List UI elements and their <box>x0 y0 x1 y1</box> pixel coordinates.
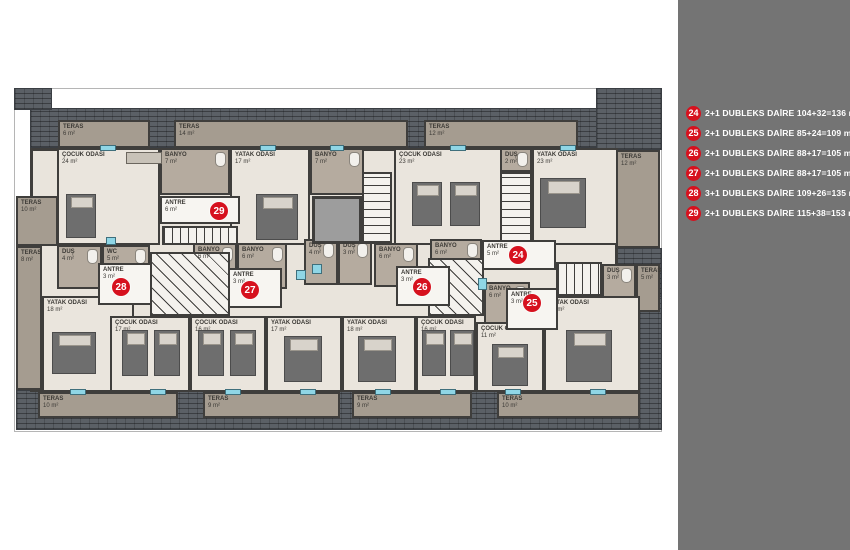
window <box>375 389 391 395</box>
room-area: 24 m² <box>62 159 105 166</box>
room-label: YATAK ODASI23 m² <box>537 152 577 166</box>
bed-pillow <box>454 333 471 345</box>
room-banyo: BANYO7 m² <box>310 148 364 195</box>
room-antre: ANTRE6 m² <box>160 196 240 224</box>
room-name: ANTRE <box>165 200 186 206</box>
room-name: ÇOCUK ODASI <box>115 320 158 326</box>
room-area: 23 m² <box>537 159 577 166</box>
room-area: 6 m² <box>435 250 457 257</box>
room--ocuk-odasi: ÇOCUK ODASI23 m² <box>394 148 502 245</box>
room-label: ÇOCUK ODASI24 m² <box>62 152 105 166</box>
legend-unit-text: 3+1 DUBLEKS DAİRE 109+26=135 m² <box>705 188 850 198</box>
roof-hatch <box>596 88 662 150</box>
bed-pillow <box>290 339 317 351</box>
room-name: YATAK ODASI <box>537 152 577 158</box>
room-teras: TERAS10 m² <box>497 392 640 418</box>
legend-item: 283+1 DUBLEKS DAİRE 109+26=135 m² <box>686 185 850 201</box>
legend-item: 242+1 DUBLEKS DAİRE 104+32=136 m² <box>686 105 850 121</box>
room-label: DUŞ3 m² <box>607 268 620 282</box>
window <box>450 145 466 151</box>
room-name: BANYO <box>315 152 337 158</box>
room-name: YATAK ODASI <box>347 320 387 326</box>
room-name: TERAS <box>63 124 83 130</box>
legend-unit-text: 2+1 DUBLEKS DAİRE 85+24=109 m² <box>705 128 850 138</box>
room-teras: TERAS10 m² <box>16 196 58 246</box>
room-name: DUŞ <box>607 268 620 274</box>
room-area: 23 m² <box>399 159 442 166</box>
legend-item: 262+1 DUBLEKS DAİRE 88+17=105 m² <box>686 145 850 161</box>
room-label: YATAK ODASI17 m² <box>235 152 275 166</box>
room-name: TERAS <box>179 124 199 130</box>
room-area: 4 m² <box>62 256 75 263</box>
window <box>478 278 487 290</box>
room-name: DUŞ <box>505 152 518 158</box>
room-label: ANTRE5 m² <box>487 244 508 258</box>
window <box>100 145 116 151</box>
staircase <box>362 172 392 244</box>
window <box>330 145 344 151</box>
room-label: BANYO6 m² <box>379 247 401 261</box>
room-area: 14 m² <box>179 131 199 138</box>
legend-unit-badge: 24 <box>686 106 701 121</box>
room-name: WC <box>107 249 117 255</box>
bed-pillow <box>574 333 607 346</box>
room-teras: TERAS12 m² <box>424 120 578 148</box>
room-name: ÇOCUK ODASI <box>421 320 464 326</box>
room-label: WC5 m² <box>107 249 119 263</box>
room-area: 7 m² <box>315 159 337 166</box>
legend-unit-badge: 29 <box>686 206 701 221</box>
bed <box>492 344 528 386</box>
room-label: BANYO6 m² <box>242 247 264 261</box>
legend-unit-badge: 26 <box>686 146 701 161</box>
staircase <box>556 262 602 296</box>
room-name: TERAS <box>208 396 228 402</box>
bed <box>122 330 148 376</box>
elevator-shaft <box>312 196 362 244</box>
room-du-: DUŞ4 m² <box>304 239 338 285</box>
room-label: TERAS5 m² <box>641 268 661 282</box>
room-du-: DUŞ3 m² <box>338 239 372 285</box>
room-name: TERAS <box>502 396 522 402</box>
room-du-: DUŞ4 m² <box>57 245 102 289</box>
room-name: ANTRE <box>233 272 254 278</box>
room-label: BANYO6 m² <box>435 243 457 257</box>
room-name: ANTRE <box>487 244 508 250</box>
room-label: DUŞ4 m² <box>62 249 75 263</box>
bed-pillow <box>127 333 146 345</box>
room-banyo: BANYO7 m² <box>160 148 230 195</box>
room-label: YATAK ODASI17 m² <box>271 320 311 334</box>
room-name: ANTRE <box>401 270 422 276</box>
bed-pillow <box>235 333 254 345</box>
roof-hatch <box>14 88 52 110</box>
room-label: TERAS12 m² <box>429 124 449 138</box>
legend-panel: 242+1 DUBLEKS DAİRE 104+32=136 m²252+1 D… <box>678 0 850 550</box>
room-label: TERAS10 m² <box>502 396 522 410</box>
unit-badge: 25 <box>523 294 541 312</box>
floor-plan: TERAS6 m²TERAS14 m²TERAS12 m²TERAS12 m²T… <box>0 0 678 550</box>
room-area: 12 m² <box>429 131 449 138</box>
room-name: TERAS <box>641 268 661 274</box>
wardrobe <box>126 152 162 164</box>
bed-pillow <box>59 335 90 346</box>
window <box>106 237 116 245</box>
room-teras: TERAS9 m² <box>203 392 340 418</box>
room-label: TERAS9 m² <box>357 396 377 410</box>
room-name: BANYO <box>242 247 264 253</box>
room-name: ANTRE <box>103 267 124 273</box>
floor-plan-page: TERAS6 m²TERAS14 m²TERAS12 m²TERAS12 m²T… <box>0 0 850 550</box>
room-name: TERAS <box>621 154 641 160</box>
window <box>225 389 241 395</box>
room-area: 10 m² <box>21 207 41 214</box>
unit-badge: 28 <box>112 278 130 296</box>
bed <box>198 330 224 376</box>
window <box>560 145 576 151</box>
room-area: 6 m² <box>63 131 83 138</box>
unit-badge: 29 <box>210 202 228 220</box>
room-name: YATAK ODASI <box>235 152 275 158</box>
window <box>300 389 316 395</box>
room-name: TERAS <box>357 396 377 402</box>
room-label: TERAS12 m² <box>621 154 641 168</box>
legend-unit-text: 2+1 DUBLEKS DAİRE 104+32=136 m² <box>705 108 850 118</box>
room-teras: TERAS6 m² <box>58 120 150 148</box>
room-du-: DUŞ3 m² <box>602 264 636 298</box>
bed-pillow <box>417 185 439 196</box>
room-label: DUŞ2 m² <box>505 152 518 166</box>
room-area: 7 m² <box>165 159 187 166</box>
room-teras: TERAS9 m² <box>352 392 472 418</box>
room-area: 9 m² <box>357 403 377 410</box>
bed-pillow <box>263 197 293 209</box>
room-label: BANYO7 m² <box>165 152 187 166</box>
room-area: 4 m² <box>309 250 322 257</box>
room-area: 3 m² <box>343 250 356 257</box>
bed <box>412 182 442 226</box>
legend-item: 272+1 DUBLEKS DAİRE 88+17=105 m² <box>686 165 850 181</box>
room-area: 12 m² <box>621 161 641 168</box>
room-teras: TERAS14 m² <box>174 120 408 148</box>
legend-unit-text: 2+1 DUBLEKS DAİRE 115+38=153 m² <box>705 208 850 218</box>
room-name: BANYO <box>435 243 457 249</box>
bed-pillow <box>364 339 391 351</box>
window <box>70 389 86 395</box>
room-area: 5 m² <box>487 251 508 258</box>
room-label: TERAS10 m² <box>21 200 41 214</box>
room-name: DUŞ <box>62 249 75 255</box>
legend-item: 252+1 DUBLEKS DAİRE 85+24=109 m² <box>686 125 850 141</box>
room-area: 11 m² <box>481 333 524 340</box>
room-area: 2 m² <box>505 159 518 166</box>
room-area: 18 m² <box>47 307 87 314</box>
room-label: TERAS14 m² <box>179 124 199 138</box>
room-name: TERAS <box>429 124 449 130</box>
unit-badge: 27 <box>241 281 259 299</box>
bed <box>256 194 298 240</box>
bed <box>52 332 96 374</box>
room-label: DUŞ4 m² <box>309 243 322 257</box>
bed <box>450 330 474 376</box>
window <box>150 389 166 395</box>
bed <box>230 330 256 376</box>
room-area: 18 m² <box>347 327 387 334</box>
room-area: 6 m² <box>379 254 401 261</box>
room-du-: DUŞ2 m² <box>500 148 532 172</box>
legend-unit-badge: 25 <box>686 126 701 141</box>
room-name: TERAS <box>21 200 41 206</box>
room-name: TERAS <box>43 396 63 402</box>
room-name: TERAS <box>21 250 41 256</box>
room-area: 10 m² <box>502 403 522 410</box>
bed <box>566 330 612 382</box>
bed-pillow <box>548 181 581 194</box>
bed <box>66 194 96 238</box>
bed-pillow <box>498 347 524 358</box>
room-label: YATAK ODASI18 m² <box>47 300 87 314</box>
legend-unit-text: 2+1 DUBLEKS DAİRE 88+17=105 m² <box>705 148 850 158</box>
room-label: TERAS8 m² <box>21 250 41 264</box>
window <box>505 389 521 395</box>
bed-pillow <box>426 333 443 345</box>
staircase <box>150 252 230 316</box>
bed <box>422 330 446 376</box>
room-name: ÇOCUK ODASI <box>399 152 442 158</box>
room-teras: TERAS10 m² <box>38 392 178 418</box>
staircase <box>162 226 238 245</box>
legend-unit-badge: 28 <box>686 186 701 201</box>
window <box>260 145 276 151</box>
room-label: DUŞ3 m² <box>343 243 356 257</box>
room-name: BANYO <box>165 152 187 158</box>
room-area: 6 m² <box>165 207 186 214</box>
room-label: TERAS10 m² <box>43 396 63 410</box>
bed-pillow <box>71 197 93 208</box>
room-area: 17 m² <box>235 159 275 166</box>
room-name: ÇOCUK ODASI <box>195 320 238 326</box>
window <box>440 389 456 395</box>
room-label: TERAS9 m² <box>208 396 228 410</box>
room-teras: TERAS12 m² <box>616 150 660 248</box>
bed <box>154 330 180 376</box>
room-label: TERAS6 m² <box>63 124 83 138</box>
room-label: BANYO7 m² <box>315 152 337 166</box>
room-name: YATAK ODASI <box>47 300 87 306</box>
window <box>296 270 306 280</box>
room-label: YATAK ODASI18 m² <box>347 320 387 334</box>
legend-unit-badge: 27 <box>686 166 701 181</box>
bed-pillow <box>159 333 178 345</box>
bed <box>540 178 586 228</box>
bed <box>284 336 322 382</box>
bed-pillow <box>203 333 222 345</box>
window <box>312 264 322 274</box>
bed-pillow <box>455 185 477 196</box>
room-name: ÇOCUK ODASI <box>62 152 105 158</box>
staircase <box>500 172 532 244</box>
bed <box>450 182 480 226</box>
legend-unit-text: 2+1 DUBLEKS DAİRE 88+17=105 m² <box>705 168 850 178</box>
room-area: 17 m² <box>271 327 311 334</box>
room-area: 3 m² <box>607 275 620 282</box>
room-area: 8 m² <box>21 257 41 264</box>
room-area: 6 m² <box>242 254 264 261</box>
unit-badge: 26 <box>413 278 431 296</box>
room-teras: TERAS8 m² <box>16 246 42 390</box>
unit-badge: 24 <box>509 246 527 264</box>
legend-item: 292+1 DUBLEKS DAİRE 115+38=153 m² <box>686 205 850 221</box>
bed <box>358 336 396 382</box>
window <box>590 389 606 395</box>
room-area: 9 m² <box>208 403 228 410</box>
room-name: YATAK ODASI <box>271 320 311 326</box>
room-name: BANYO <box>379 247 401 253</box>
room-label: ANTRE6 m² <box>165 200 186 214</box>
room-area: 10 m² <box>43 403 63 410</box>
room-area: 5 m² <box>641 275 661 282</box>
room-label: ÇOCUK ODASI23 m² <box>399 152 442 166</box>
